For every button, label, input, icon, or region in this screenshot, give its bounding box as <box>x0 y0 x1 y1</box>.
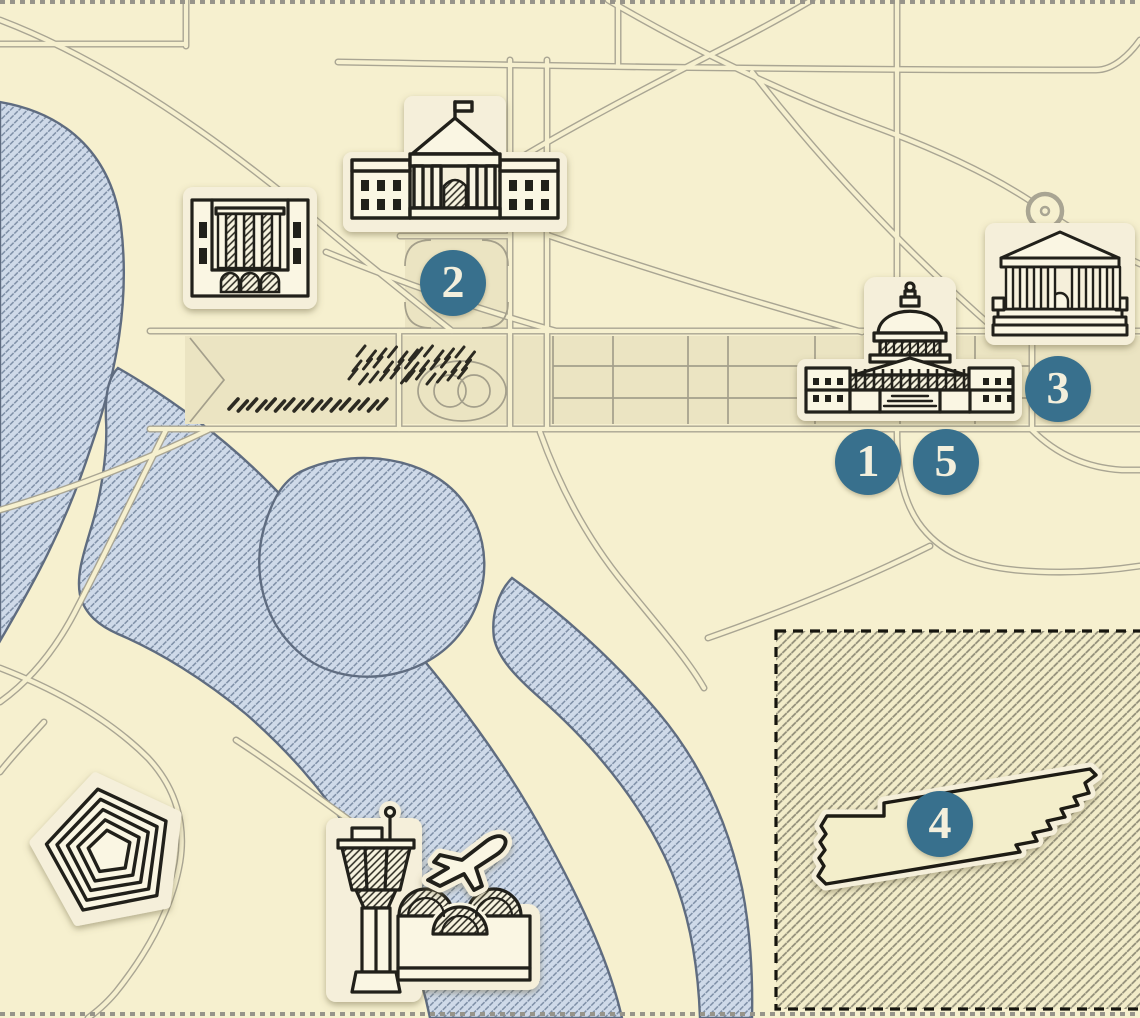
dotted-border-bottom <box>0 1012 1140 1016</box>
map-marker-2[interactable]: 2 <box>420 250 486 316</box>
supreme-court-icon <box>985 223 1135 345</box>
tidal-basin <box>259 458 484 677</box>
marker-label: 1 <box>857 434 880 487</box>
map-marker-1[interactable]: 1 <box>835 429 901 495</box>
marker-label: 5 <box>935 434 958 487</box>
marker-label: 4 <box>929 796 952 849</box>
marker-label: 3 <box>1047 361 1070 414</box>
traffic-circle <box>1028 194 1062 228</box>
map-marker-4[interactable]: 4 <box>907 791 973 857</box>
map-artwork <box>0 0 1140 1018</box>
federal-building-icon <box>183 187 317 309</box>
dc-illustrated-map: 1 2 3 4 5 <box>0 0 1140 1018</box>
map-marker-5[interactable]: 5 <box>913 429 979 495</box>
dotted-border-top <box>0 0 1140 4</box>
marker-label: 2 <box>442 255 465 308</box>
map-marker-3[interactable]: 3 <box>1025 356 1091 422</box>
